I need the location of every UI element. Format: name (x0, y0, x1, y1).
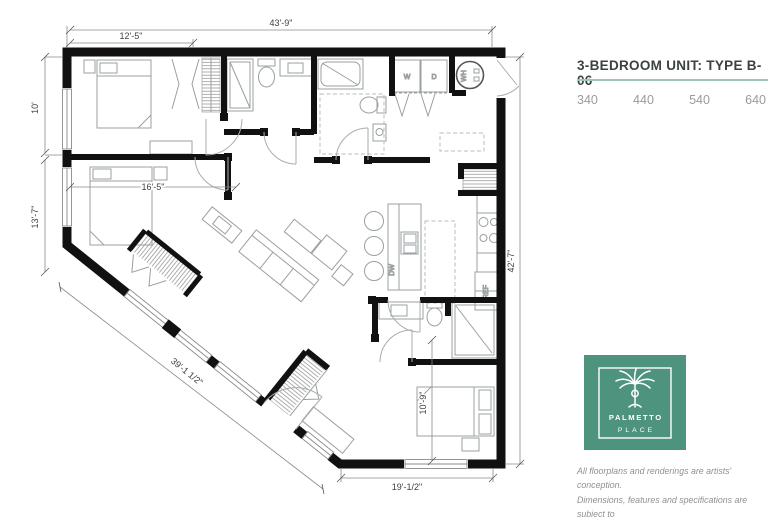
dim-label-overall-depth: 42'-7" (506, 250, 516, 273)
dim-left-lower (41, 156, 49, 276)
media-console (202, 207, 242, 243)
bath1-door (264, 132, 296, 164)
dim-label-bottom-width: 19'-1/2" (392, 482, 422, 492)
dim-label-bed1-depth: 10' (30, 102, 40, 114)
logo-text-place: PLACE (618, 427, 655, 434)
disclaimer-line-2: Dimensions, features and specifications … (577, 493, 777, 517)
dim-label-bed2-width: 16'-5" (142, 182, 165, 192)
dim-label-diagonal: 39'-1 1/2" (169, 356, 205, 388)
bath3-door (380, 330, 412, 362)
bed3-furniture (417, 387, 494, 451)
unit-number-3: 540 (689, 93, 710, 107)
doors (195, 60, 519, 429)
pantry-shelves (463, 169, 497, 190)
bath1-fixtures (227, 59, 313, 111)
diagonal-window-1 (123, 288, 212, 363)
bed1-door (206, 119, 242, 155)
floor-plan: W D WH (0, 0, 565, 517)
palmetto-place-logo: PALMETTO PLACE (584, 355, 686, 450)
bath2-fixtures (318, 59, 386, 154)
page-title: 3-BEDROOM UNIT: TYPE B-06 (577, 58, 772, 88)
dim-label-bed3-width: 10'-9" (418, 392, 428, 415)
logo-text-palmetto: PALMETTO (609, 413, 663, 422)
dim-label-overall-width: 43'-9" (270, 18, 293, 28)
corner-door-opening (495, 58, 507, 98)
unit-number-2: 440 (633, 93, 654, 107)
title-underline (577, 79, 768, 81)
diagonal-window-2 (213, 360, 262, 403)
bed2-furniture (90, 167, 167, 245)
dim-label-bed1-width: 12'-5" (120, 31, 143, 41)
dim-label-left-lower: 13'-7" (30, 206, 40, 229)
flyer-page: W D WH (0, 0, 780, 517)
dim-bed1-depth (41, 53, 62, 157)
bottom-window (404, 458, 468, 470)
unit-number-1: 340 (577, 93, 598, 107)
diagonal-window-3 (301, 430, 334, 460)
unit-numbers: 340 440 540 640 (577, 93, 766, 107)
living-room-furniture (239, 199, 362, 317)
dryer-label: D (431, 74, 436, 81)
washer-dryer (394, 60, 447, 116)
dim-bottom-width (337, 469, 497, 482)
furniture-layer: W D WH (84, 58, 501, 453)
left-window-2 (61, 167, 73, 227)
bed2-door (195, 157, 228, 190)
unit-number-4: 640 (745, 93, 766, 107)
refrigerator-label: REF (483, 285, 490, 299)
disclaimer: All floorplans and renderings are artist… (577, 464, 777, 517)
washer-label: W (404, 74, 411, 81)
dishwasher-label: DW (389, 264, 396, 276)
bath2-door (336, 128, 368, 160)
left-window-1 (61, 88, 73, 150)
bed1-closet (172, 58, 220, 112)
water-heater-label: WH (461, 70, 468, 82)
disclaimer-line-1: All floorplans and renderings are artist… (577, 464, 777, 493)
